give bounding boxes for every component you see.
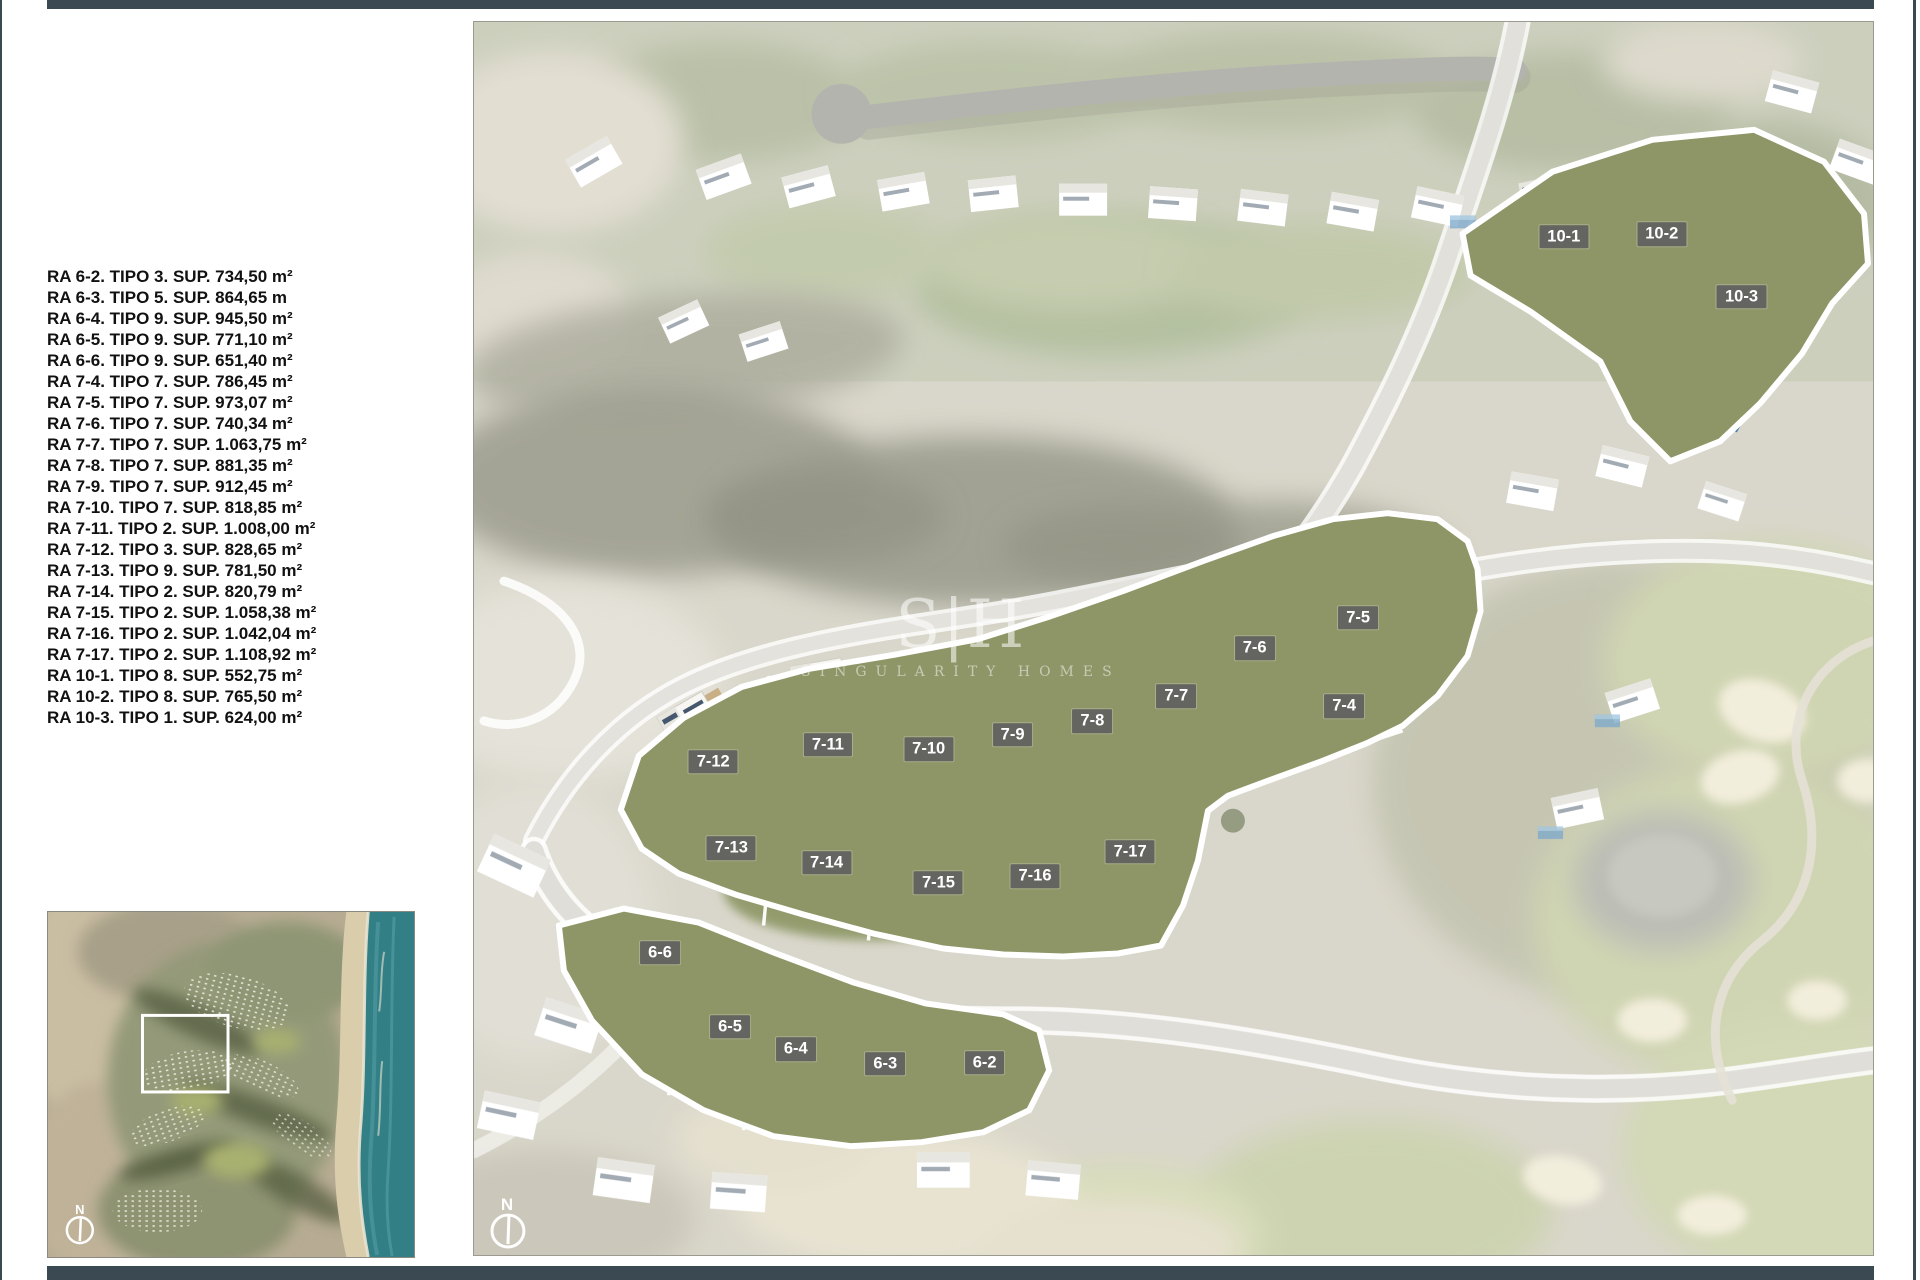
- legend-item: RA 6-6. TIPO 9. SUP. 651,40 m²: [47, 350, 407, 371]
- site-plan-graphic: N: [474, 22, 1873, 1255]
- legend-item: RA 7-16. TIPO 2. SUP. 1.042,04 m²: [47, 623, 407, 644]
- left-rule: [0, 0, 2, 1280]
- legend-item: RA 7-12. TIPO 3. SUP. 828,65 m²: [47, 539, 407, 560]
- legend-item: RA 7-17. TIPO 2. SUP. 1.108,92 m²: [47, 644, 407, 665]
- legend-item: RA 7-6. TIPO 7. SUP. 740,34 m²: [47, 413, 407, 434]
- map-compass-label: N: [501, 1195, 513, 1214]
- inset-compass-label: N: [75, 1202, 84, 1217]
- legend-item: RA 6-5. TIPO 9. SUP. 771,10 m²: [47, 329, 407, 350]
- legend-item: RA 7-5. TIPO 7. SUP. 973,07 m²: [47, 392, 407, 413]
- legend-item: RA 7-11. TIPO 2. SUP. 1.008,00 m²: [47, 518, 407, 539]
- legend-item: RA 7-15. TIPO 2. SUP. 1.058,38 m²: [47, 602, 407, 623]
- plot-legend: RA 6-2. TIPO 3. SUP. 734,50 m²RA 6-3. TI…: [47, 266, 407, 728]
- legend-item: RA 7-4. TIPO 7. SUP. 786,45 m²: [47, 371, 407, 392]
- inset-map-graphic: N: [48, 912, 414, 1257]
- legend-item: RA 6-3. TIPO 5. SUP. 864,65 m: [47, 287, 407, 308]
- legend-item: RA 6-4. TIPO 9. SUP. 945,50 m²: [47, 308, 407, 329]
- location-inset-map: N: [47, 911, 415, 1258]
- right-rule: [1913, 0, 1916, 1280]
- legend-item: RA 10-1. TIPO 8. SUP. 552,75 m²: [47, 665, 407, 686]
- legend-item: RA 6-2. TIPO 3. SUP. 734,50 m²: [47, 266, 407, 287]
- legend-item: RA 7-14. TIPO 2. SUP. 820,79 m²: [47, 581, 407, 602]
- legend-item: RA 7-7. TIPO 7. SUP. 1.063,75 m²: [47, 434, 407, 455]
- legend-item: RA 7-9. TIPO 7. SUP. 912,45 m²: [47, 476, 407, 497]
- legend-item: RA 10-3. TIPO 1. SUP. 624,00 m²: [47, 707, 407, 728]
- bottom-border-bar: [47, 1266, 1874, 1280]
- legend-item: RA 7-13. TIPO 9. SUP. 781,50 m²: [47, 560, 407, 581]
- top-border-bar: [47, 0, 1874, 9]
- brochure-page: RA 6-2. TIPO 3. SUP. 734,50 m²RA 6-3. TI…: [0, 0, 1920, 1280]
- legend-item: RA 7-8. TIPO 7. SUP. 881,35 m²: [47, 455, 407, 476]
- site-plan-map: N S|H SINGULARITY HOMES 10-110-210-37-57…: [473, 21, 1874, 1256]
- legend-item: RA 7-10. TIPO 7. SUP. 818,85 m²: [47, 497, 407, 518]
- legend-item: RA 10-2. TIPO 8. SUP. 765,50 m²: [47, 686, 407, 707]
